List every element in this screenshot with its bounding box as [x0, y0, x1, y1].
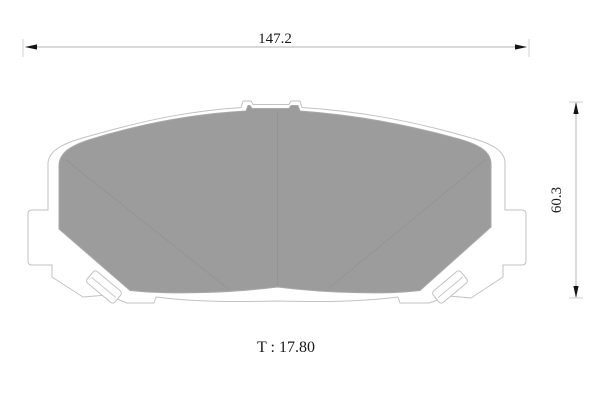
brake-pad-technical-drawing: 147.2 60.3 T : 17.80: [0, 0, 600, 400]
arrow-right-icon: [515, 44, 527, 49]
width-dimension-label: 147.2: [258, 31, 292, 47]
drawing-canvas: 147.2 60.3 T : 17.80: [0, 0, 600, 400]
arrow-left-icon: [25, 44, 37, 49]
arrow-up-icon: [573, 102, 578, 114]
thickness-label: T : 17.80: [257, 339, 315, 356]
height-dimension: 60.3: [549, 102, 583, 298]
friction-material: [59, 106, 491, 293]
arrow-down-icon: [573, 286, 578, 298]
friction-material-surface: [59, 106, 491, 293]
width-dimension: 147.2: [23, 31, 529, 57]
height-dimension-label: 60.3: [549, 187, 565, 213]
